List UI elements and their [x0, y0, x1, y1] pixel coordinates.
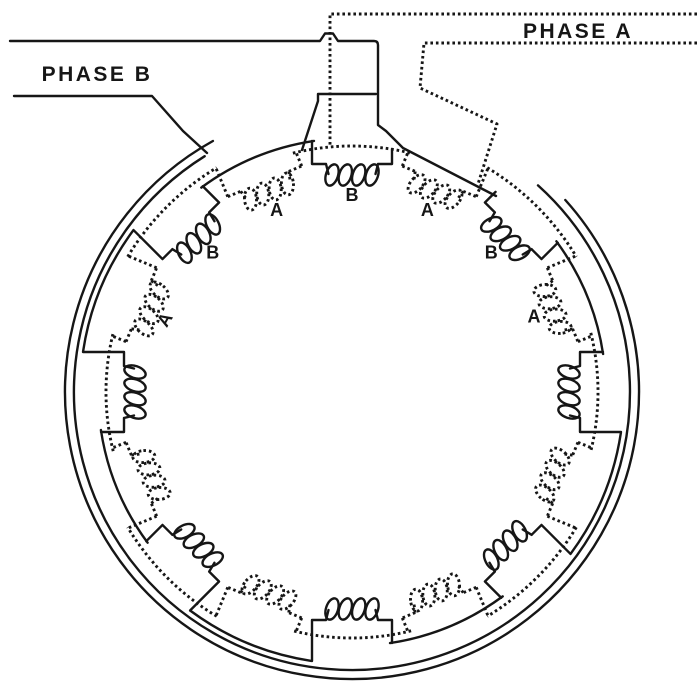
- coil-spring-loop: [174, 240, 195, 265]
- coil-spring-loop: [172, 521, 197, 542]
- coil-spring-loop: [549, 321, 572, 335]
- coil-spring-loop: [422, 584, 436, 607]
- coil-spring-loop: [490, 538, 511, 563]
- phase-b-connection-arc: [571, 433, 621, 554]
- coil-label-b: B: [346, 185, 359, 205]
- coil-spring-loop: [143, 474, 166, 488]
- phase-b-connection-arc: [201, 141, 314, 188]
- phase-a-connection-arc: [591, 333, 598, 451]
- phase-b-label: PHASE B: [42, 63, 153, 86]
- pole-bracket: [538, 438, 606, 528]
- pole-15-A: [216, 137, 311, 218]
- coil-spring-loop: [544, 308, 567, 322]
- two-phase-motor-winding-figure: ABABABA PHASE A PHASE B: [0, 0, 700, 684]
- coil-label-a: A: [528, 307, 541, 327]
- coil-spring-loop: [244, 188, 258, 211]
- pole-bracket: [97, 438, 165, 528]
- coil-spring-loop: [481, 547, 502, 572]
- diagram-drawing: ABABABA: [10, 14, 697, 679]
- outer-yoke-arc-inner: [74, 156, 630, 670]
- pole-bracket: [398, 578, 488, 646]
- phase-a-connection-arc: [106, 333, 113, 451]
- coil-spring-loop: [500, 528, 521, 553]
- coil-label-b: B: [206, 243, 219, 263]
- phase-a-connection-arc: [293, 631, 411, 638]
- pole-0-B: [312, 141, 392, 187]
- pole-bracket: [134, 518, 227, 611]
- phase-a-label: PHASE A: [523, 20, 633, 43]
- coil-spring-loop: [509, 519, 530, 544]
- coil-spring-loop: [181, 530, 206, 551]
- phase-a-connection-arc: [293, 146, 411, 153]
- pole-bracket: [216, 137, 306, 205]
- coil-spring-loop: [538, 296, 561, 310]
- coil-spring-loop: [488, 223, 513, 244]
- coil-spring-loop: [507, 242, 532, 263]
- coil-spring-loop: [268, 178, 282, 201]
- coil-label-a: A: [421, 200, 434, 220]
- coil-spring-loop: [479, 214, 504, 235]
- coil-spring-loop: [183, 231, 204, 256]
- coil-label-a: A: [153, 309, 177, 330]
- pole-2-B: [468, 186, 557, 275]
- coil-spring-loop: [323, 597, 341, 622]
- coil-spring-loop: [363, 163, 381, 188]
- pole-bracket: [97, 256, 165, 346]
- pole-bracket: [398, 137, 488, 205]
- coil-spring-loop: [138, 462, 161, 476]
- pole-4-B: [557, 352, 621, 432]
- coil-spring-loop: [533, 284, 556, 298]
- coil-spring-loop: [498, 233, 523, 254]
- coil-label-a: A: [270, 200, 283, 220]
- pole-12-B: [83, 352, 147, 432]
- phase-a-lead-top: [330, 14, 697, 147]
- coil-spring-loop: [256, 183, 270, 206]
- coil-spring-loop: [410, 589, 424, 612]
- pole-7-A: [393, 566, 488, 647]
- coil-label-b: B: [485, 243, 498, 263]
- phase-a-lead-right: [420, 43, 697, 184]
- coil-spring-loop: [132, 450, 155, 464]
- phase-b-connection-arc: [191, 611, 312, 661]
- coil-spring-loop: [200, 549, 225, 570]
- coil-spring-loop: [123, 363, 148, 381]
- coil-spring-loop: [148, 487, 171, 501]
- coil-spring-loop: [281, 172, 295, 195]
- coil-spring-loop: [202, 212, 223, 237]
- pole-3-A: [526, 256, 607, 351]
- phase-b-lead-left: [14, 96, 207, 153]
- pole-bracket: [538, 256, 606, 346]
- coil-spring-loop: [557, 403, 582, 421]
- phase-b-connection-arc: [83, 231, 133, 352]
- coil-spring-loop: [447, 573, 461, 596]
- pole-bracket: [478, 518, 571, 611]
- coil-spring-loop: [434, 578, 448, 601]
- pole-8-B: [312, 597, 392, 661]
- stator-winding-diagram: ABABABA PHASE A PHASE B: [0, 0, 700, 684]
- coil-spring-loop: [191, 540, 216, 561]
- pole-11-A: [97, 433, 178, 528]
- pole-bracket: [216, 578, 306, 646]
